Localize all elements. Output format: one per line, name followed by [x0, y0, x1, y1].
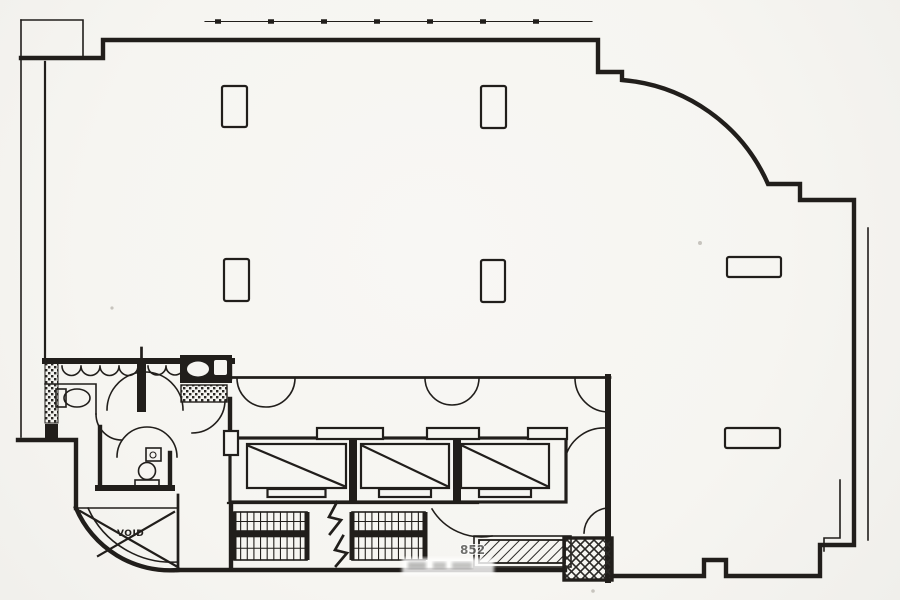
- lobby-restroom-door-arc: [192, 400, 225, 433]
- restroom-block: [45, 348, 232, 489]
- restroom-left-wall-foot: [45, 424, 58, 441]
- watermark-number: 852: [460, 543, 485, 557]
- stair-break-lines: [329, 502, 347, 566]
- scan-speck: [591, 589, 595, 593]
- elevator-1-diagonal: [249, 446, 344, 486]
- stair-flight-left-divider: [233, 531, 308, 537]
- stair-flight-left-end-cap: [305, 512, 310, 560]
- column: [481, 86, 506, 128]
- elevator-3-door: [479, 489, 531, 497]
- outer-wall: [21, 40, 854, 576]
- shaft-divider-2: [453, 440, 461, 501]
- lobby-door-arc-3: [575, 378, 609, 412]
- building-outline: [18, 20, 868, 576]
- lobby-door-arc-4: [566, 428, 605, 455]
- wall-basin-icon: [146, 448, 161, 461]
- elevator-bank: [224, 428, 567, 502]
- scan-speck: [698, 241, 702, 245]
- parapet-corner-block: [21, 20, 83, 56]
- elevator-jamb-1: [317, 428, 383, 439]
- elevator-cars: [247, 444, 549, 497]
- watermark-dash: [408, 562, 426, 569]
- elevator-jamb-3: [528, 428, 567, 439]
- shaft-divider-1: [349, 440, 357, 501]
- basin-drain-icon: [150, 452, 156, 458]
- lobby-door-arc-2: [425, 378, 479, 405]
- elevator-2-diagonal: [363, 446, 447, 486]
- sink-basin-icon: [187, 362, 209, 377]
- column: [224, 259, 249, 301]
- stair-flight-right-end-cap: [423, 512, 428, 560]
- lobby-door-arc-1: [237, 378, 295, 407]
- hatched-counter: [181, 385, 227, 402]
- crosshatched-shaft: [564, 538, 612, 580]
- column: [481, 260, 505, 302]
- right-inner-step-line: [824, 480, 840, 551]
- floor-plan-drawing: VOID: [0, 0, 900, 600]
- toilet-icon: [64, 389, 90, 407]
- watermark-dash: [433, 562, 446, 569]
- lavatory-sinks-row: [62, 366, 184, 376]
- stair-flight-right-divider: [351, 531, 426, 537]
- restroom-partition-stem: [137, 362, 146, 412]
- stair-flight-left-end-cap: [232, 512, 237, 560]
- elevator-1-door: [268, 489, 326, 497]
- service-shafts: [474, 536, 612, 580]
- elevator-jamb-2: [427, 428, 479, 439]
- floor-plan-page: VOID: [0, 0, 900, 600]
- accessible-wc-walls: [100, 427, 170, 488]
- lower-left-step-wall: [18, 440, 76, 508]
- column: [725, 428, 780, 448]
- elevator-jamb-left: [224, 431, 238, 455]
- cistern-icon: [214, 360, 227, 375]
- stair-flight-right-end-cap: [350, 512, 355, 560]
- scan-speck: [110, 306, 113, 309]
- column: [727, 257, 781, 277]
- stair-flights: [232, 512, 428, 560]
- structural-columns: [222, 86, 781, 448]
- watermark-dash: [452, 562, 472, 569]
- stair-door-arc: [432, 509, 492, 537]
- toilet-bowl-icon: [139, 463, 156, 480]
- elevator-3-diagonal: [463, 446, 547, 486]
- column: [222, 86, 247, 127]
- core-door-arc: [584, 508, 607, 533]
- void-label: VOID: [117, 529, 144, 539]
- elevator-2-door: [379, 489, 431, 497]
